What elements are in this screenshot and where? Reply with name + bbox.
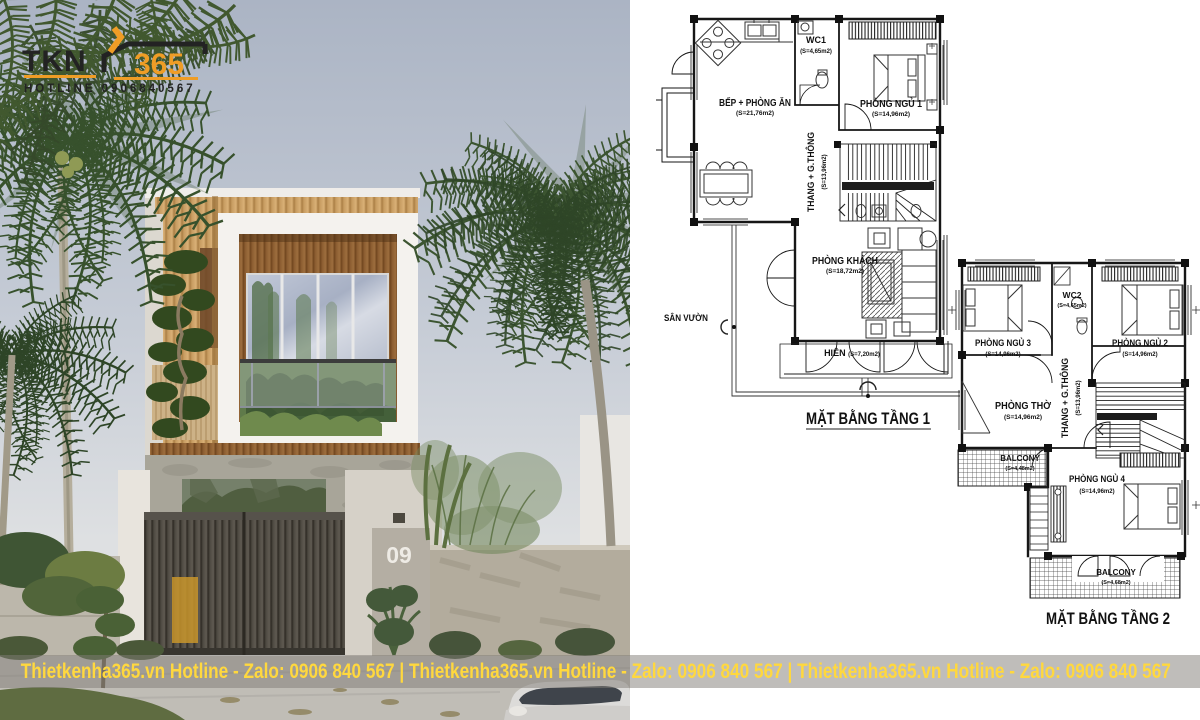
- svg-text:HOTLINE 0906840567: HOTLINE 0906840567: [24, 83, 196, 95]
- svg-text:(S=14,96m2): (S=14,96m2): [872, 111, 910, 118]
- svg-text:THANG + G.THÔNG: THANG + G.THÔNG: [1059, 358, 1071, 438]
- svg-text:SÂN VƯỜN: SÂN VƯỜN: [664, 312, 708, 323]
- svg-text:(S=4,65m2): (S=4,65m2): [800, 49, 832, 55]
- svg-text:WC1: WC1: [806, 35, 826, 45]
- svg-text:(S=14,96m2): (S=14,96m2): [985, 352, 1020, 358]
- svg-text:(S=13,96m2): (S=13,96m2): [1076, 380, 1082, 415]
- svg-text:PHÒNG THỜ: PHÒNG THỜ: [995, 399, 1051, 412]
- svg-text:(S=14,96m2): (S=14,96m2): [1079, 489, 1114, 495]
- svg-text:BALCONY: BALCONY: [1096, 568, 1136, 577]
- svg-text:MẶT BẰNG TẦNG 1: MẶT BẰNG TẦNG 1: [806, 409, 930, 428]
- svg-text:(S=13,96m2): (S=13,96m2): [822, 154, 828, 189]
- svg-text:(S=4,48m2): (S=4,48m2): [1005, 466, 1034, 472]
- svg-text:09: 09: [386, 542, 412, 568]
- svg-text:THANG + G.THÔNG: THANG + G.THÔNG: [805, 132, 817, 212]
- svg-text:BALCONY: BALCONY: [1000, 454, 1040, 463]
- svg-text:PHÒNG NGỦ 1: PHÒNG NGỦ 1: [860, 97, 922, 110]
- svg-text:(S=4,68m2): (S=4,68m2): [1101, 580, 1130, 586]
- svg-text:365: 365: [134, 48, 184, 81]
- svg-text:PHÒNG NGỦ 4: PHÒNG NGỦ 4: [1069, 473, 1125, 484]
- svg-text:WC2: WC2: [1063, 290, 1082, 300]
- svg-text:PHÒNG NGỦ 3: PHÒNG NGỦ 3: [975, 337, 1031, 348]
- svg-text:PHÒNG NGỦ 2: PHÒNG NGỦ 2: [1112, 337, 1168, 348]
- svg-text:PHÒNG KHÁCH: PHÒNG KHÁCH: [812, 254, 878, 267]
- svg-text:(S=14,96m2): (S=14,96m2): [1004, 414, 1042, 421]
- svg-text:MẶT BẰNG TẦNG 2: MẶT BẰNG TẦNG 2: [1046, 609, 1170, 628]
- svg-text:(S=18,72m2): (S=18,72m2): [826, 268, 864, 275]
- svg-text:(S=4,65m2): (S=4,65m2): [1057, 303, 1086, 309]
- svg-text:TKN: TKN: [22, 45, 87, 78]
- svg-text:(S=14,96m2): (S=14,96m2): [1122, 352, 1157, 358]
- svg-text:HIÊN (S=7,20m2): HIÊN (S=7,20m2): [824, 347, 880, 358]
- svg-text:(S=21,76m2): (S=21,76m2): [736, 110, 774, 117]
- svg-text:BẾP + PHÒNG ĂN: BẾP + PHÒNG ĂN: [719, 96, 791, 109]
